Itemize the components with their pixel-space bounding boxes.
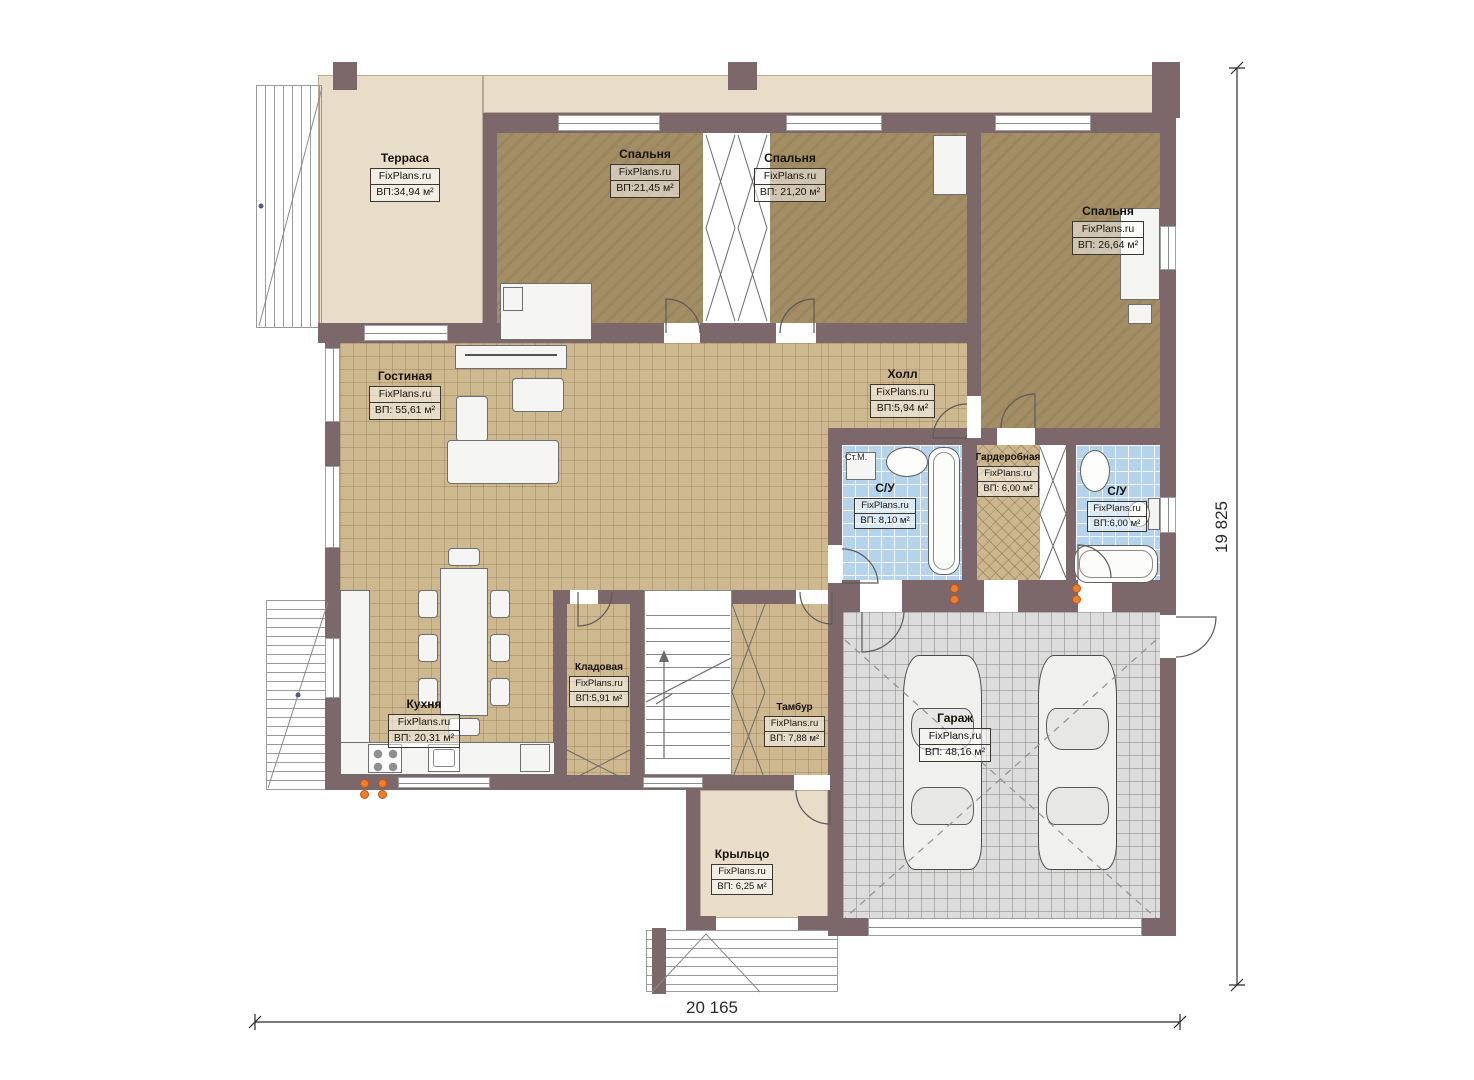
- room-label-bedroom1: Спальня FixPlans.ruВП:21,45 м²: [595, 148, 695, 198]
- brand-link: FixPlans.ru: [765, 717, 824, 732]
- room-name: Кухня: [378, 698, 470, 712]
- door-opening-bathroom1: [828, 545, 842, 583]
- dining-chair: [448, 548, 480, 566]
- east-wall-lower: [1160, 658, 1176, 930]
- porch-south-wall-left: [686, 916, 716, 930]
- window-bedroom3-east: [1160, 226, 1176, 270]
- brand-link: FixPlans.ru: [855, 499, 914, 514]
- window-terrace-south: [364, 325, 448, 341]
- room-area: ВП:5,94 м²: [871, 401, 934, 417]
- room-area: ВП: 26,64 м²: [1073, 238, 1143, 254]
- room-label-porch: Крыльцо FixPlans.ruВП: 6,25 м²: [698, 848, 786, 895]
- window-bedroom2: [786, 115, 882, 131]
- pillow-bedroom1: [503, 287, 523, 311]
- dining-chair: [418, 590, 438, 618]
- room-label-tambour: Тамбур FixPlans.ruВП: 7,88 м²: [752, 702, 837, 747]
- east-wall-upper: [1160, 113, 1176, 615]
- window-bedroom1: [558, 115, 660, 131]
- bathroom2-bathtub: [1074, 545, 1158, 583]
- garage-south-wall-right: [1142, 918, 1176, 936]
- nightstand-bedroom3: [1128, 304, 1152, 324]
- stove: [368, 744, 402, 773]
- dining-chair: [490, 634, 510, 662]
- room-area: ВП:5,91 м²: [570, 692, 628, 706]
- door-opening-wardrobe: [984, 580, 1018, 612]
- pilaster-nw: [333, 62, 357, 90]
- window-living-1: [325, 348, 340, 422]
- room-area: ВП: 8,10 м²: [855, 514, 914, 528]
- top-eave-strip: [483, 75, 1176, 113]
- door-opening-bathroom2: [1078, 580, 1112, 612]
- radiator: [950, 584, 959, 604]
- door-opening-bedroom1: [664, 323, 700, 343]
- brand-link: FixPlans.ru: [755, 169, 825, 186]
- bathroom1-east-wall: [962, 428, 977, 580]
- radiator: [360, 779, 369, 799]
- brand-link: FixPlans.ru: [611, 165, 678, 182]
- room-label-bedroom2: Спальня FixPlans.ruВП: 21,20 м²: [740, 152, 840, 202]
- room-name: Спальня: [740, 152, 840, 166]
- brand-link: FixPlans.ru: [389, 715, 459, 732]
- radiator: [1072, 584, 1081, 604]
- room-name: Гараж: [905, 712, 1005, 726]
- room-label-kitchen: Кухня FixPlans.ruВП: 20,31 м²: [378, 698, 470, 748]
- door-opening-tambour-north: [796, 590, 828, 604]
- room-area: ВП: 48,16 м²: [920, 745, 990, 761]
- window-kitchen: [325, 638, 340, 698]
- dining-table: [440, 568, 488, 716]
- door-opening-tambour-porch: [794, 775, 830, 790]
- dimension-width: 20 165: [632, 998, 792, 1018]
- room-label-storage: Кладовая FixPlans.ruВП:5,91 м²: [554, 662, 644, 707]
- kitchen-sink: [428, 744, 460, 772]
- door-opening-garage-nw: [860, 580, 902, 612]
- room-name: С/У: [845, 482, 925, 496]
- terrace-bedroom1-wall: [483, 113, 497, 343]
- room-name: Тамбур: [752, 702, 837, 714]
- window-bedroom3: [995, 115, 1091, 131]
- room-name: Кладовая: [554, 662, 644, 674]
- pilaster-n: [728, 62, 757, 90]
- room-area: ВП: 7,88 м²: [765, 732, 824, 746]
- brand-link: FixPlans.ru: [1088, 502, 1146, 517]
- room-area: ВП:21,45 м²: [611, 181, 678, 197]
- room-area: ВП:34,94 м²: [371, 185, 438, 201]
- garage-west-wall: [828, 580, 843, 930]
- window-kitchen-south: [398, 777, 490, 788]
- tv-stand: [455, 345, 567, 369]
- room-label-wardrobe: Гардеробная FixPlans.ruВП: 6,00 м²: [964, 452, 1052, 497]
- porch-pillar: [652, 928, 666, 994]
- room-label-bathroom1: С/У FixPlans.ruВП: 8,10 м²: [845, 482, 925, 529]
- brand-link: FixPlans.ru: [978, 467, 1037, 482]
- brand-link: FixPlans.ru: [1073, 222, 1143, 239]
- window-stair-south: [643, 777, 703, 788]
- brand-link: FixPlans.ru: [920, 729, 990, 746]
- door-opening-garage-east: [1160, 615, 1176, 658]
- terrace-outdoor-steps: [256, 85, 322, 328]
- room-name: Холл: [855, 368, 950, 382]
- room-name: С/У: [1078, 485, 1156, 499]
- door-opening-hall: [967, 396, 981, 438]
- west-outdoor-steps: [266, 600, 330, 790]
- dining-chair: [418, 634, 438, 662]
- porch-south-wall-right: [798, 916, 842, 930]
- radiator: [378, 779, 387, 799]
- room-label-garage: Гараж FixPlans.ruВП: 48,16 м²: [905, 712, 1005, 762]
- desk-bedroom2: [933, 135, 967, 195]
- brand-link: FixPlans.ru: [370, 387, 440, 404]
- bathroom1-bathtub: [928, 447, 960, 575]
- room-label-bedroom3: Спальня FixPlans.ruВП: 26,64 м²: [1058, 205, 1158, 255]
- room-area: ВП: 6,00 м²: [978, 482, 1037, 496]
- car-right: [1038, 655, 1117, 870]
- room-name: Гардеробная: [964, 452, 1052, 464]
- door-opening-bedroom2: [776, 323, 816, 343]
- storage-north-wall: [553, 590, 644, 604]
- dining-chair: [490, 590, 510, 618]
- brand-link: FixPlans.ru: [712, 865, 771, 880]
- window-bathroom2-east: [1160, 497, 1176, 533]
- washing-machine-label: Ст.М.: [845, 452, 867, 462]
- room-area: ВП:6,00 м²: [1088, 517, 1146, 531]
- room-name: Спальня: [1058, 205, 1158, 219]
- bathroom1-sink: [886, 447, 928, 477]
- pilaster-ne: [1152, 62, 1180, 118]
- car-left: [903, 655, 982, 870]
- sofa: [447, 440, 559, 484]
- door-opening-bedroom3: [997, 428, 1035, 445]
- dimension-height: 19 825: [1212, 467, 1232, 587]
- room-name: Спальня: [595, 148, 695, 162]
- armchair: [456, 396, 488, 442]
- room-label-terrace: Терраса FixPlans.ruВП:34,94 м²: [355, 152, 455, 202]
- room-name: Терраса: [355, 152, 455, 166]
- room-area: ВП: 20,31 м²: [389, 731, 459, 747]
- brand-link: FixPlans.ru: [570, 677, 628, 692]
- room-label-bathroom2: С/У FixPlans.ruВП:6,00 м²: [1078, 485, 1156, 532]
- stair-treads: [646, 615, 730, 765]
- coffee-table: [512, 378, 564, 412]
- room-area: ВП: 21,20 м²: [755, 185, 825, 201]
- room-label-living: Гостиная FixPlans.ruВП: 55,61 м²: [355, 370, 455, 420]
- room-label-hall: Холл FixPlans.ruВП:5,94 м²: [855, 368, 950, 418]
- tv-screen: [465, 354, 557, 356]
- window-living-2: [325, 466, 340, 548]
- dining-chair: [490, 678, 510, 706]
- room-name: Гостиная: [355, 370, 455, 384]
- floor-plan: Терраса FixPlans.ruВП:34,94 м² Спальня F…: [0, 0, 1474, 1080]
- garage-gate-opening: [868, 918, 1142, 936]
- brand-link: FixPlans.ru: [371, 169, 438, 186]
- door-opening-storage: [570, 590, 598, 604]
- brand-link: FixPlans.ru: [871, 385, 934, 402]
- fridge: [520, 744, 550, 772]
- room-name: Крыльцо: [698, 848, 786, 862]
- room-area: ВП: 55,61 м²: [370, 403, 440, 419]
- room-area: ВП: 6,25 м²: [712, 880, 771, 894]
- porch-steps: [646, 930, 838, 992]
